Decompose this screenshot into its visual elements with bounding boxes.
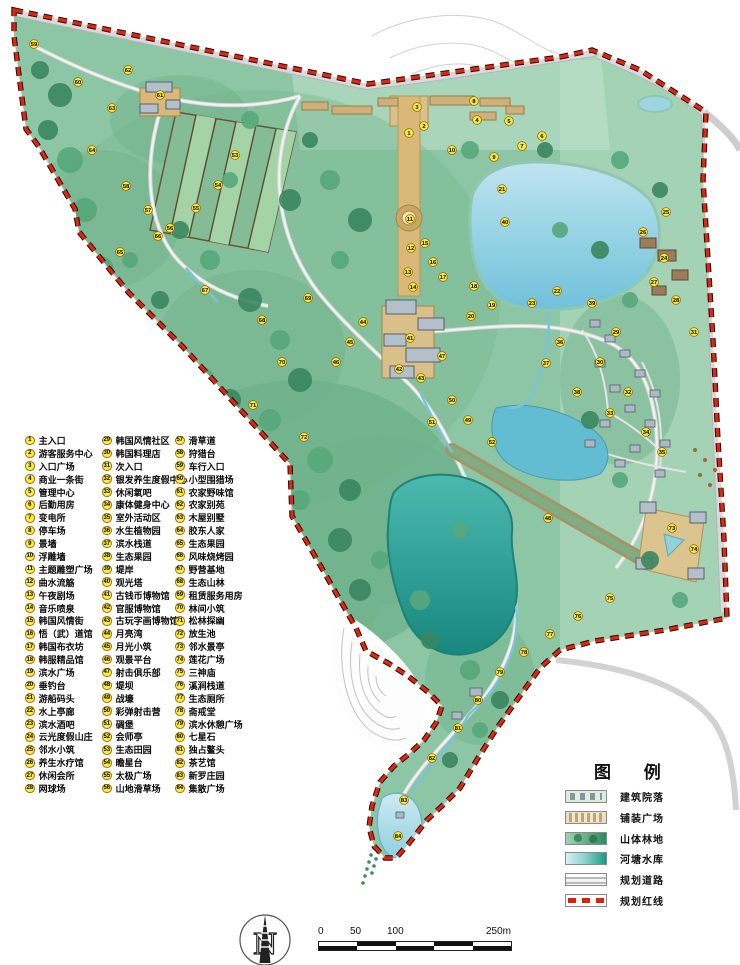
legend-item: 28网球场 [25, 782, 93, 795]
legend-item: 10浮雕墙 [25, 550, 93, 563]
map-marker-12: 12 [407, 244, 416, 253]
legend-item-number-badge: 21 [25, 693, 35, 703]
legend-item-label: 滨水广场 [39, 666, 75, 679]
legend-item: 22水上亭廊 [25, 705, 93, 718]
svg-text:44: 44 [360, 320, 367, 326]
legend-item-number-badge: 30 [102, 449, 112, 459]
map-legend-entry: 规划红线 [565, 894, 664, 907]
scale-bar-cell [357, 942, 395, 950]
map-marker-44: 44 [359, 318, 368, 327]
legend-item-label: 滨水酒吧 [39, 718, 75, 731]
map-legend-entry: 铺装广场 [565, 811, 664, 824]
legend-item-number-badge: 22 [25, 706, 35, 716]
map-marker-63: 63 [108, 104, 117, 113]
svg-text:22: 22 [554, 289, 560, 295]
legend-item-number-badge: 33 [102, 487, 112, 497]
legend-item-label: 邻水景亭 [189, 640, 225, 653]
map-marker-23: 23 [528, 299, 537, 308]
legend-item-label: 堤坝 [116, 679, 134, 692]
legend-item-number-badge: 8 [25, 526, 35, 536]
legend-item: 65生态果园 [175, 537, 243, 550]
legend-item-label: 车行入口 [189, 460, 225, 473]
map-marker-81: 81 [454, 724, 463, 733]
svg-text:78: 78 [521, 650, 528, 656]
legend-item-label: 韩国风情社区 [116, 434, 170, 447]
map-marker-15: 15 [421, 239, 430, 248]
map-marker-75: 75 [606, 594, 615, 603]
legend-item-number-badge: 72 [175, 629, 185, 639]
road-swatch [565, 873, 607, 886]
svg-text:21: 21 [499, 187, 506, 193]
map-marker-79: 79 [496, 668, 505, 677]
legend-item-number-badge: 68 [175, 577, 185, 587]
map-marker-77: 77 [546, 630, 555, 639]
legend-item-label: 主入口 [39, 434, 66, 447]
svg-text:59: 59 [31, 42, 38, 48]
legend-item-label: 主题雕塑广场 [39, 563, 93, 576]
legend-item-label: 商业一条街 [39, 473, 84, 486]
legend-item-label: 游船码头 [39, 692, 75, 705]
map-marker-82: 82 [428, 754, 437, 763]
map-marker-11: 11 [406, 215, 415, 224]
legend-item-label: 变电所 [39, 511, 66, 524]
map-marker-60: 60 [74, 78, 83, 87]
legend-item-number-badge: 15 [25, 616, 35, 626]
legend-item-number-badge: 79 [175, 719, 185, 729]
legend-column: 1主入口2游客服务中心3入口广场4商业一条街5管理中心6后勤用房7变电所8停车场… [25, 434, 93, 795]
legend-item-label: 垂钓台 [39, 679, 66, 692]
scale-bar: 050100250m [318, 926, 518, 956]
legend-item-number-badge: 62 [175, 500, 185, 510]
legend-item-number-badge: 19 [25, 668, 35, 678]
svg-text:27: 27 [651, 280, 657, 286]
map-legend-label: 建筑院落 [620, 789, 664, 804]
legend-item-label: 游客服务中心 [39, 447, 93, 460]
legend-item-label: 滨水休憩广场 [189, 718, 243, 731]
legend-item-number-badge: 9 [25, 539, 35, 549]
svg-text:49: 49 [465, 418, 472, 424]
legend-item: 79滨水休憩广场 [175, 718, 243, 731]
legend-item-number-badge: 54 [102, 758, 112, 768]
legend-item: 72放生池 [175, 627, 243, 640]
svg-text:46: 46 [333, 360, 340, 366]
legend-item-label: 木屋别墅 [189, 511, 225, 524]
legend-item-label: 次入口 [116, 460, 143, 473]
legend-item-label: 景墙 [39, 537, 57, 550]
map-legend-entry: 河塘水库 [565, 852, 664, 865]
legend-item-label: 风味烧烤园 [189, 550, 234, 563]
legend-item-label: 放生池 [189, 627, 216, 640]
map-marker-70: 70 [278, 358, 287, 367]
legend-item: 27休闲会所 [25, 769, 93, 782]
legend-item-number-badge: 70 [175, 603, 185, 613]
legend-item-label: 滨水栈道 [116, 537, 152, 550]
legend-item-number-badge: 43 [102, 616, 112, 626]
map-marker-25: 25 [662, 208, 671, 217]
map-marker-74: 74 [690, 545, 699, 554]
map-marker-68: 68 [258, 316, 267, 325]
legend-item: 18韩服精品馆 [25, 653, 93, 666]
legend-item-number-badge: 51 [102, 719, 112, 729]
map-marker-30: 30 [596, 358, 605, 367]
legend-item-label: 太极广场 [116, 769, 152, 782]
legend-item-label: 狩猎台 [189, 447, 216, 460]
scale-tick-label: 50 [350, 926, 361, 937]
legend-item-number-badge: 61 [175, 487, 185, 497]
map-marker-78: 78 [520, 648, 529, 657]
map-marker-83: 83 [400, 796, 409, 805]
svg-text:50: 50 [449, 398, 455, 404]
legend-item-number-badge: 75 [175, 668, 185, 678]
legend-item-number-badge: 12 [25, 577, 35, 587]
legend-item-number-badge: 66 [175, 552, 185, 562]
legend-item-number-badge: 82 [175, 758, 185, 768]
legend-item-label: 音乐喷泉 [39, 602, 75, 615]
legend-item-number-badge: 34 [102, 500, 112, 510]
legend-item-number-badge: 80 [175, 732, 185, 742]
scale-tick-label: 250m [486, 926, 511, 937]
svg-text:32: 32 [625, 390, 631, 396]
svg-text:26: 26 [640, 230, 647, 236]
legend-item-number-badge: 7 [25, 513, 35, 523]
map-marker-73: 73 [668, 524, 677, 533]
legend-item-label: 生态厕所 [189, 692, 225, 705]
svg-text:20: 20 [468, 314, 474, 320]
svg-text:29: 29 [613, 330, 620, 336]
legend-item: 4商业一条街 [25, 473, 93, 486]
svg-text:33: 33 [607, 411, 614, 417]
legend-item-label: 会师亭 [116, 730, 143, 743]
svg-text:45: 45 [347, 340, 354, 346]
map-legend-label: 规划道路 [620, 872, 664, 887]
map-marker-55: 55 [192, 204, 201, 213]
legend-item-number-badge: 10 [25, 552, 35, 562]
map-marker-35: 35 [658, 448, 667, 457]
legend-item-label: 堤岸 [116, 563, 134, 576]
map-marker-27: 27 [650, 278, 659, 287]
legend-item-number-badge: 56 [102, 784, 112, 794]
legend-item-label: 网球场 [39, 782, 66, 795]
legend-item: 69租赁服务用房 [175, 589, 243, 602]
legend-item-number-badge: 37 [102, 539, 112, 549]
svg-text:58: 58 [123, 184, 130, 190]
legend-item-number-badge: 16 [25, 629, 35, 639]
legend-item-number-badge: 27 [25, 771, 35, 781]
svg-text:41: 41 [407, 336, 414, 342]
legend-item-number-badge: 53 [102, 745, 112, 755]
map-marker-22: 22 [553, 287, 562, 296]
legend-item-number-badge: 45 [102, 642, 112, 652]
svg-text:17: 17 [440, 275, 446, 281]
svg-text:39: 39 [589, 301, 596, 307]
svg-text:57: 57 [145, 208, 151, 214]
legend-item-label: 韩国布衣坊 [39, 640, 84, 653]
legend-item-label: 古钱币博物馆 [116, 589, 170, 602]
legend-item: 67野营基地 [175, 563, 243, 576]
svg-text:13: 13 [405, 270, 412, 276]
scale-bar-ticks: 050100250m [318, 926, 518, 939]
legend-item: 15韩国风情街 [25, 614, 93, 627]
legend-item: 77生态厕所 [175, 692, 243, 705]
map-marker-65: 65 [116, 248, 125, 257]
map-legend-label: 规划红线 [620, 893, 664, 908]
map-marker-67: 67 [201, 286, 210, 295]
legend-item: 62农家别苑 [175, 498, 243, 511]
legend-item: 14音乐喷泉 [25, 602, 93, 615]
svg-text:38: 38 [574, 390, 581, 396]
svg-text:19: 19 [489, 303, 496, 309]
building-swatch [565, 790, 607, 803]
legend-item-number-badge: 48 [102, 681, 112, 691]
map-marker-39: 39 [588, 299, 597, 308]
legend-item-number-badge: 28 [25, 784, 35, 794]
legend-item-label: 野营基地 [189, 563, 225, 576]
map-marker-24: 24 [660, 254, 669, 263]
legend-item-number-badge: 55 [102, 771, 112, 781]
legend-item-number-badge: 59 [175, 461, 185, 471]
legend-item-number-badge: 6 [25, 500, 35, 510]
legend-item-number-badge: 25 [25, 745, 35, 755]
legend-item-label: 康体健身中心 [116, 498, 170, 511]
legend-item-number-badge: 81 [175, 745, 185, 755]
legend-item-number-badge: 78 [175, 706, 185, 716]
map-marker-50: 50 [448, 396, 457, 405]
legend-item-label: 云光度假山庄 [39, 730, 93, 743]
legend-item-label: 观景平台 [116, 653, 152, 666]
map-marker-61: 61 [156, 91, 165, 100]
map-marker-71: 71 [249, 401, 258, 410]
legend-item-label: 独占鳌头 [189, 743, 225, 756]
svg-text:84: 84 [395, 834, 402, 840]
legend-item: 12曲水流觞 [25, 576, 93, 589]
svg-text:53: 53 [232, 153, 239, 159]
map-marker-29: 29 [612, 328, 621, 337]
map-marker-14: 14 [409, 283, 418, 292]
map-marker-48: 48 [544, 514, 553, 523]
map-marker-76: 76 [574, 612, 583, 621]
svg-text:36: 36 [557, 340, 564, 346]
svg-text:52: 52 [489, 440, 495, 446]
svg-text:65: 65 [117, 250, 124, 256]
legend-item-number-badge: 77 [175, 693, 185, 703]
map-marker-17: 17 [439, 273, 448, 282]
map-marker-4: 4 [473, 116, 482, 125]
north-compass: N [237, 912, 293, 965]
planning-map-page: 1234567891011121314151617181920212223242… [0, 0, 740, 965]
legend-item-number-badge: 44 [102, 629, 112, 639]
legend-item: 59车行入口 [175, 460, 243, 473]
map-marker-56: 56 [166, 224, 175, 233]
legend-item-number-badge: 5 [25, 487, 35, 497]
legend-item-label: 碉堡 [116, 718, 134, 731]
svg-text:30: 30 [597, 360, 603, 366]
svg-text:73: 73 [669, 526, 676, 532]
legend-item-label: 官服博物馆 [116, 602, 161, 615]
legend-item-label: 射击俱乐部 [116, 666, 161, 679]
legend-item: 57滑草道 [175, 434, 243, 447]
legend-item-label: 悟（武）道馆 [39, 627, 93, 640]
legend-item-number-badge: 42 [102, 603, 112, 613]
legend-item: 60小型围猎场 [175, 473, 243, 486]
map-marker-1: 1 [405, 129, 414, 138]
legend-item-label: 生态果园 [116, 550, 152, 563]
map-marker-21: 21 [498, 185, 507, 194]
legend-item: 73邻水景亭 [175, 640, 243, 653]
svg-text:72: 72 [301, 435, 307, 441]
svg-text:14: 14 [410, 285, 417, 291]
legend-item: 24云光度假山庄 [25, 730, 93, 743]
svg-text:51: 51 [429, 420, 436, 426]
legend-item: 75三神庙 [175, 666, 243, 679]
map-legend-entry: 规划道路 [565, 873, 664, 886]
svg-text:55: 55 [193, 206, 200, 212]
legend-item-label: 租赁服务用房 [189, 589, 243, 602]
map-marker-52: 52 [488, 438, 497, 447]
legend-item: 80七星石 [175, 730, 243, 743]
map-legend-label: 河塘水库 [620, 851, 664, 866]
map-marker-28: 28 [672, 296, 681, 305]
legend-item-number-badge: 3 [25, 461, 35, 471]
legend-item-number-badge: 40 [102, 577, 112, 587]
map-marker-5: 5 [505, 117, 514, 126]
map-marker-84: 84 [394, 832, 403, 841]
legend-item-label: 农家别苑 [189, 498, 225, 511]
redline-swatch [565, 894, 607, 907]
map-marker-43: 43 [417, 374, 426, 383]
legend-item: 71松林探幽 [175, 614, 243, 627]
svg-text:71: 71 [250, 403, 257, 409]
legend-item: 5管理中心 [25, 486, 93, 499]
legend-item-label: 月光小筑 [116, 640, 152, 653]
legend-item-label: 松林探幽 [189, 614, 225, 627]
svg-text:64: 64 [89, 148, 96, 154]
map-marker-26: 26 [639, 228, 648, 237]
map-legend-entries: 建筑院落铺装广场山体林地河塘水库规划道路规划红线 [565, 790, 664, 915]
legend-item-label: 溪涧栈道 [189, 679, 225, 692]
svg-text:11: 11 [407, 217, 414, 223]
svg-text:63: 63 [109, 106, 116, 112]
legend-item-label: 生态山林 [189, 576, 225, 589]
legend-item: 58狩猎台 [175, 447, 243, 460]
legend-item-number-badge: 13 [25, 590, 35, 600]
map-marker-38: 38 [573, 388, 582, 397]
map-marker-19: 19 [488, 301, 497, 310]
legend-item-number-badge: 52 [102, 732, 112, 742]
legend-item-number-badge: 38 [102, 552, 112, 562]
legend-item-number-badge: 35 [102, 513, 112, 523]
map-marker-42: 42 [395, 365, 404, 374]
map-legend-label: 铺装广场 [620, 810, 664, 825]
legend-item-number-badge: 60 [175, 474, 185, 484]
legend-item-label: 集散广场 [189, 782, 225, 795]
legend-item-number-badge: 67 [175, 565, 185, 575]
svg-text:74: 74 [691, 547, 698, 553]
legend-item-number-badge: 23 [25, 719, 35, 729]
legend-item: 6后勤用房 [25, 498, 93, 511]
legend-item-label: 曲水流觞 [39, 576, 75, 589]
legend-item: 8停车场 [25, 524, 93, 537]
svg-text:60: 60 [75, 80, 81, 86]
svg-text:54: 54 [215, 183, 222, 189]
legend-item-label: 水生植物园 [116, 524, 161, 537]
legend-item-number-badge: 73 [175, 642, 185, 652]
legend-item: 9景墙 [25, 537, 93, 550]
legend-item: 61农家野味馆 [175, 486, 243, 499]
map-marker-31: 31 [690, 328, 699, 337]
legend-item: 82茶艺馆 [175, 756, 243, 769]
svg-text:76: 76 [575, 614, 582, 620]
map-marker-69: 69 [304, 294, 313, 303]
legend-item: 70林间小筑 [175, 602, 243, 615]
svg-text:16: 16 [430, 260, 437, 266]
map-marker-41: 41 [406, 334, 415, 343]
legend-item-label: 小型围猎场 [189, 473, 234, 486]
legend-item-number-badge: 11 [25, 565, 35, 575]
legend-item-label: 战壕 [116, 692, 134, 705]
legend-item-number-badge: 29 [102, 436, 112, 446]
svg-text:48: 48 [545, 516, 552, 522]
legend-item-label: 浮雕墙 [39, 550, 66, 563]
legend-item: 16悟（武）道馆 [25, 627, 93, 640]
legend-item-number-badge: 58 [175, 449, 185, 459]
legend-item-label: 韩国风情街 [39, 614, 84, 627]
legend-item: 74莲花广场 [175, 653, 243, 666]
map-marker-10: 10 [448, 146, 457, 155]
scale-tick-label: 100 [387, 926, 404, 937]
legend-item: 11主题雕塑广场 [25, 563, 93, 576]
legend-item: 83新罗庄园 [175, 769, 243, 782]
svg-text:7: 7 [520, 144, 523, 150]
svg-text:82: 82 [429, 756, 435, 762]
map-marker-53: 53 [231, 151, 240, 160]
map-marker-37: 37 [542, 359, 551, 368]
legend-item-label: 三神庙 [189, 666, 216, 679]
svg-text:67: 67 [202, 288, 208, 294]
legend-item: 3入口广场 [25, 460, 93, 473]
legend-item-number-badge: 64 [175, 526, 185, 536]
legend-item-number-badge: 17 [25, 642, 35, 652]
legend-item-label: 韩国料理店 [116, 447, 161, 460]
svg-text:77: 77 [547, 632, 553, 638]
legend-item-label: 后勤用房 [39, 498, 75, 511]
map-marker-64: 64 [88, 146, 97, 155]
legend-item-label: 水上亭廊 [39, 705, 75, 718]
legend-item: 2游客服务中心 [25, 447, 93, 460]
map-marker-66: 66 [154, 232, 163, 241]
svg-text:80: 80 [475, 698, 481, 704]
map-legend-title: 图 例 [594, 758, 675, 783]
legend-item-number-badge: 84 [175, 784, 185, 794]
legend-item-label: 观光塔 [116, 576, 143, 589]
svg-text:35: 35 [659, 450, 666, 456]
legend-item-number-badge: 2 [25, 449, 35, 459]
scale-tick-label: 0 [318, 926, 324, 937]
map-marker-6: 6 [538, 132, 547, 141]
svg-text:61: 61 [157, 93, 164, 99]
legend-item: 7变电所 [25, 511, 93, 524]
map-marker-47: 47 [438, 352, 447, 361]
map-marker-58: 58 [122, 182, 131, 191]
legend-item-label: 斋戒堂 [189, 705, 216, 718]
svg-text:15: 15 [422, 241, 429, 247]
legend-item-number-badge: 83 [175, 771, 185, 781]
map-marker-9: 9 [490, 153, 499, 162]
legend-item-label: 休闲氧吧 [116, 486, 152, 499]
legend-item-number-badge: 39 [102, 565, 112, 575]
legend-item-number-badge: 26 [25, 758, 35, 768]
scale-bar-cell [396, 942, 434, 950]
legend-item-label: 午夜剧场 [39, 589, 75, 602]
